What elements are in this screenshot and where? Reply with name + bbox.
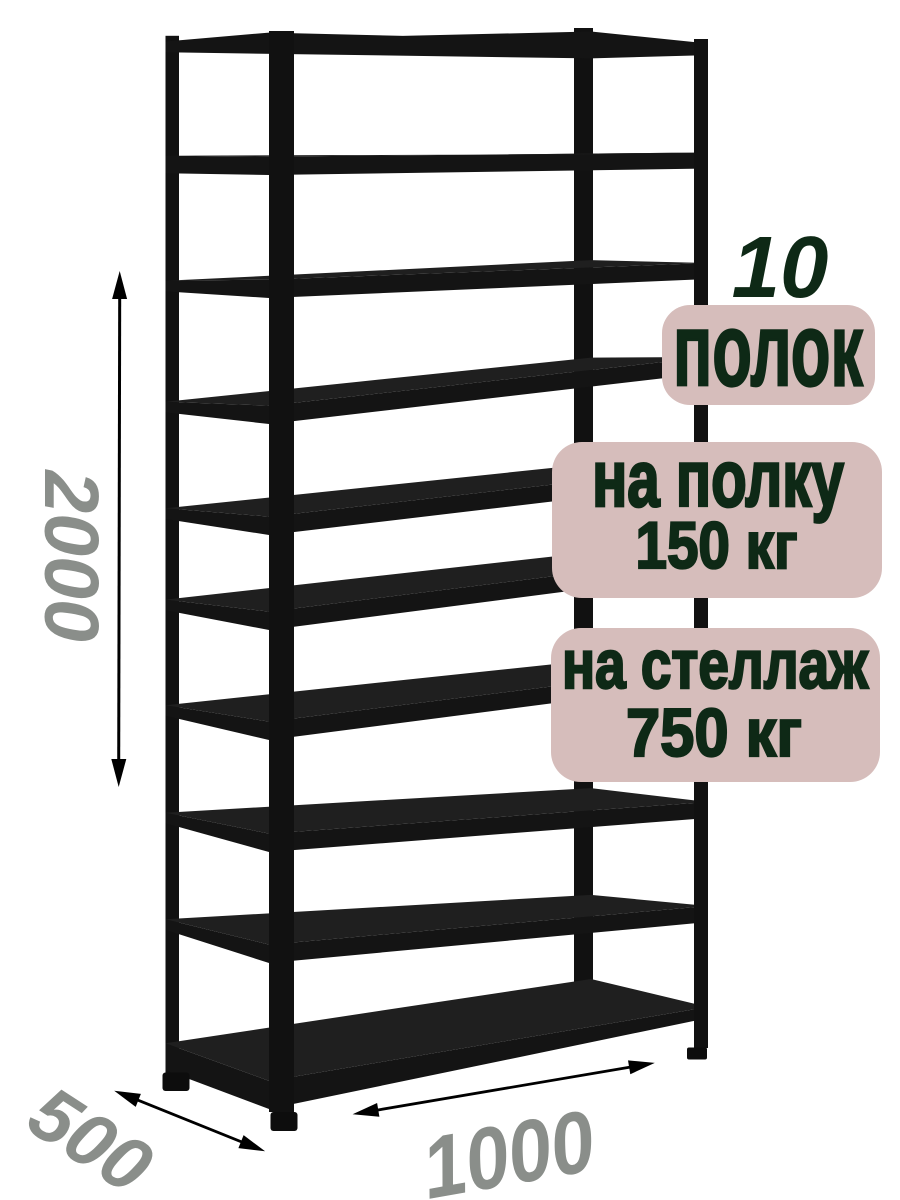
svg-text:1000: 1000: [415, 1092, 602, 1200]
svg-text:500: 500: [14, 1070, 167, 1200]
svg-text:на стеллаж: на стеллаж: [562, 627, 869, 703]
svg-text:750 кг: 750 кг: [626, 694, 802, 770]
svg-text:150 кг: 150 кг: [635, 509, 797, 583]
svg-text:полок: полок: [673, 293, 864, 408]
svg-text:2000: 2000: [28, 468, 114, 641]
